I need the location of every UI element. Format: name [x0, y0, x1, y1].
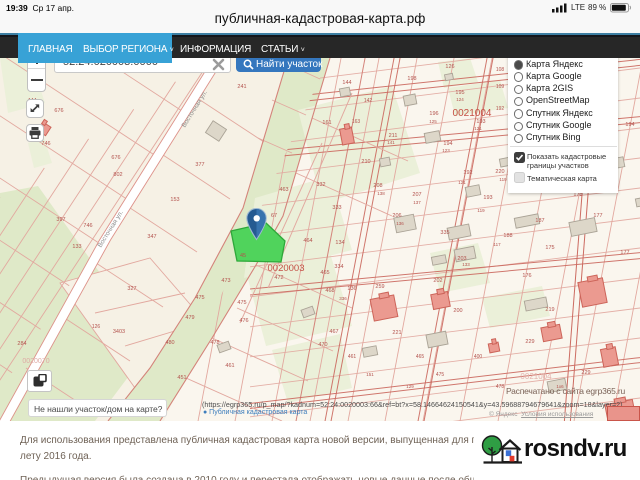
svg-text:0020070: 0020070 — [22, 358, 49, 365]
svg-text:478: 478 — [210, 340, 219, 346]
svg-text:480: 480 — [165, 340, 174, 346]
svg-text:192: 192 — [496, 106, 505, 112]
svg-text:121: 121 — [474, 126, 482, 131]
svg-text:210: 210 — [361, 159, 370, 165]
svg-text:126: 126 — [92, 324, 101, 330]
svg-text:479: 479 — [185, 315, 194, 321]
svg-text:229: 229 — [525, 339, 534, 345]
svg-text:475: 475 — [195, 295, 204, 301]
svg-text:200: 200 — [453, 308, 462, 314]
svg-text:463: 463 — [279, 187, 288, 193]
svg-text:153: 153 — [170, 197, 179, 203]
svg-text:208: 208 — [373, 183, 382, 189]
svg-text:472: 472 — [274, 275, 283, 281]
svg-text:195: 195 — [455, 90, 464, 96]
svg-text:134: 134 — [335, 240, 344, 246]
svg-text:676: 676 — [111, 155, 120, 161]
svg-text:211: 211 — [389, 133, 398, 139]
svg-text:377: 377 — [195, 162, 204, 168]
svg-text:332: 332 — [316, 182, 325, 188]
svg-text:220: 220 — [495, 169, 504, 175]
svg-text:219: 219 — [545, 307, 554, 313]
svg-text:188: 188 — [503, 233, 512, 239]
svg-text:177: 177 — [620, 250, 629, 256]
svg-text:109: 109 — [496, 84, 505, 90]
svg-text:465: 465 — [320, 270, 329, 276]
svg-text:194: 194 — [443, 141, 452, 147]
svg-text:144: 144 — [342, 80, 351, 86]
svg-text:473: 473 — [221, 278, 230, 284]
svg-text:161: 161 — [322, 120, 331, 126]
svg-text:0020003: 0020003 — [268, 263, 305, 274]
svg-text:126: 126 — [445, 64, 454, 70]
svg-text:108: 108 — [496, 67, 505, 73]
svg-text:133: 133 — [72, 244, 81, 250]
svg-text:119: 119 — [499, 177, 507, 182]
svg-text:259: 259 — [375, 284, 384, 290]
svg-text:467: 467 — [329, 329, 338, 335]
svg-text:176: 176 — [522, 273, 531, 279]
svg-text:121: 121 — [458, 180, 466, 185]
svg-text:67: 67 — [271, 213, 277, 219]
svg-text:333: 333 — [332, 205, 341, 211]
svg-text:461: 461 — [348, 354, 357, 360]
svg-text:327: 327 — [127, 286, 136, 292]
svg-text:206: 206 — [392, 213, 401, 219]
svg-text:124: 124 — [456, 97, 464, 102]
svg-text:117: 117 — [493, 242, 501, 247]
svg-text:207: 207 — [412, 192, 421, 198]
svg-text:194: 194 — [625, 122, 634, 128]
svg-text:400: 400 — [474, 354, 483, 360]
svg-text:3403: 3403 — [113, 329, 125, 335]
svg-text:198: 198 — [407, 76, 416, 82]
svg-text:468: 468 — [325, 288, 334, 294]
svg-text:141: 141 — [387, 140, 395, 145]
svg-text:746: 746 — [83, 223, 92, 229]
svg-text:746: 746 — [41, 141, 50, 147]
svg-text:136: 136 — [396, 221, 404, 226]
svg-text:136: 136 — [347, 286, 356, 292]
svg-text:192: 192 — [463, 170, 472, 176]
svg-text:202: 202 — [433, 278, 442, 284]
svg-text:397: 397 — [56, 217, 65, 223]
svg-text:193: 193 — [483, 195, 492, 201]
svg-text:461: 461 — [225, 363, 234, 369]
svg-text:151: 151 — [366, 372, 374, 377]
svg-text:221: 221 — [392, 330, 401, 336]
svg-text:335: 335 — [440, 230, 449, 236]
svg-text:334: 334 — [334, 264, 343, 270]
svg-text:476: 476 — [239, 318, 248, 324]
svg-text:196: 196 — [429, 111, 438, 117]
svg-text:138: 138 — [377, 191, 385, 196]
svg-text:129: 129 — [406, 384, 414, 389]
svg-text:137: 137 — [413, 200, 421, 205]
svg-text:470: 470 — [318, 342, 327, 348]
svg-text:802: 802 — [113, 172, 122, 178]
svg-text:241: 241 — [237, 84, 246, 90]
svg-text:123: 123 — [442, 148, 450, 153]
svg-text:347: 347 — [147, 234, 156, 240]
svg-text:229: 229 — [581, 370, 590, 376]
svg-text:464: 464 — [303, 238, 312, 244]
svg-text:336: 336 — [339, 296, 347, 301]
svg-text:0021004: 0021004 — [453, 108, 492, 119]
svg-text:133: 133 — [462, 262, 470, 267]
svg-text:465: 465 — [416, 354, 425, 360]
svg-text:451: 451 — [177, 375, 186, 381]
svg-text:175: 175 — [545, 245, 554, 251]
svg-text:119: 119 — [477, 208, 485, 213]
svg-text:284: 284 — [17, 341, 26, 347]
svg-text:177: 177 — [593, 213, 602, 219]
svg-text:163: 163 — [352, 119, 361, 125]
svg-text:142: 142 — [364, 98, 373, 104]
svg-text:193: 193 — [476, 119, 485, 125]
svg-text:676: 676 — [54, 108, 63, 114]
svg-text:187: 187 — [535, 218, 544, 224]
svg-text:45: 45 — [240, 253, 246, 259]
svg-text:475: 475 — [237, 300, 246, 306]
svg-text:475: 475 — [436, 372, 445, 378]
svg-text:125: 125 — [429, 119, 437, 124]
svg-text:0021004: 0021004 — [520, 372, 552, 381]
